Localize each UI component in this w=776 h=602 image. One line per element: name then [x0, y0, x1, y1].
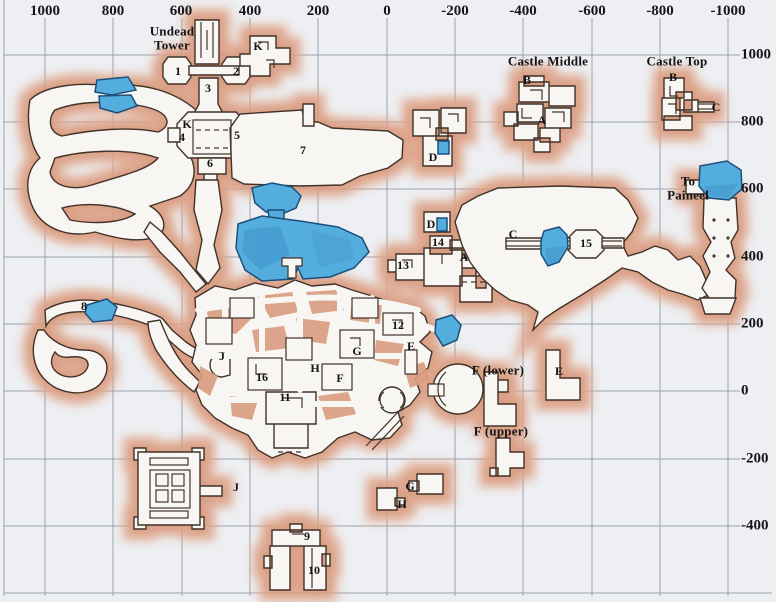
map-label-13: 13 [397, 259, 409, 271]
map-label-e: E [407, 340, 415, 352]
axis-top-label-1000: 1000 [30, 3, 60, 20]
axis-top-label--600: -600 [578, 3, 606, 20]
axis-top-label-400: 400 [239, 3, 262, 20]
axis-right-label-600: 600 [741, 181, 764, 198]
map-label-e: E [555, 365, 563, 377]
map-label-4: 4 [179, 131, 185, 143]
map-label-9: 9 [304, 530, 310, 542]
map-label-j: J [219, 350, 225, 362]
map-label-11: 11 [279, 391, 290, 403]
map-label-6: 6 [207, 157, 213, 169]
map-label-7: 7 [300, 144, 306, 156]
map-label-1: 1 [175, 65, 181, 77]
map-label-f-lower-: F (lower) [472, 364, 524, 377]
map-label-h: H [397, 498, 406, 510]
axis-top-label--400: -400 [509, 3, 537, 20]
axis-right-label-0: 0 [741, 383, 749, 400]
map-label-5: 5 [234, 129, 240, 141]
axis-right-label-400: 400 [741, 249, 764, 266]
map-label-paineel: Paineel [667, 189, 709, 202]
map-label-g: G [405, 480, 414, 492]
map-label-a: A [538, 114, 547, 126]
map-label-8: 8 [81, 300, 87, 312]
map-label-j: J [233, 481, 239, 493]
map-label-16: 16 [256, 371, 268, 383]
axis-right-label-800: 800 [741, 114, 764, 131]
axis-top-label-200: 200 [307, 3, 330, 20]
axis-right-label-200: 200 [741, 316, 764, 333]
map-label-tower: Tower [154, 39, 190, 52]
map-label-12: 12 [392, 319, 404, 331]
map-label-c: C [509, 228, 518, 240]
axis-top-label-800: 800 [102, 3, 125, 20]
map-label-14: 14 [432, 236, 444, 248]
axis-top-label-0: 0 [383, 3, 391, 20]
map-label-castle-top: Castle Top [647, 55, 708, 68]
axis-top-label--800: -800 [646, 3, 674, 20]
axis-top-label-600: 600 [170, 3, 193, 20]
map-label-a: A [460, 251, 469, 263]
map-label-g: G [352, 345, 361, 357]
map-label-h: H [310, 362, 319, 374]
map-label-f: F [336, 372, 343, 384]
axis-right-label--400: -400 [741, 518, 769, 535]
map-canvas [0, 0, 776, 602]
map-label-undead: Undead [150, 25, 195, 38]
map-label-15: 15 [580, 237, 592, 249]
map-label-10: 10 [308, 564, 320, 576]
map-label-3: 3 [205, 82, 211, 94]
map-label-f-upper-: F (upper) [474, 425, 528, 438]
axis-top-label--200: -200 [441, 3, 469, 20]
dungeon-map: 10008006004002000-200-400-600-800-1000 1… [0, 0, 776, 602]
map-label-c: C [712, 101, 721, 113]
axis-right-label-1000: 1000 [741, 47, 771, 64]
axis-right-label--200: -200 [741, 451, 769, 468]
map-label-castle-middle: Castle Middle [508, 55, 588, 68]
map-label-b: B [669, 71, 677, 83]
map-label-d: D [427, 218, 436, 230]
map-label-k: K [253, 40, 262, 52]
map-label-b: B [523, 74, 531, 86]
map-label-2: 2 [233, 65, 239, 77]
map-label-d: D [429, 151, 438, 163]
map-label-to: To [681, 175, 695, 188]
map-label-k: K [182, 118, 191, 130]
axis-top-label--1000: -1000 [711, 3, 746, 20]
